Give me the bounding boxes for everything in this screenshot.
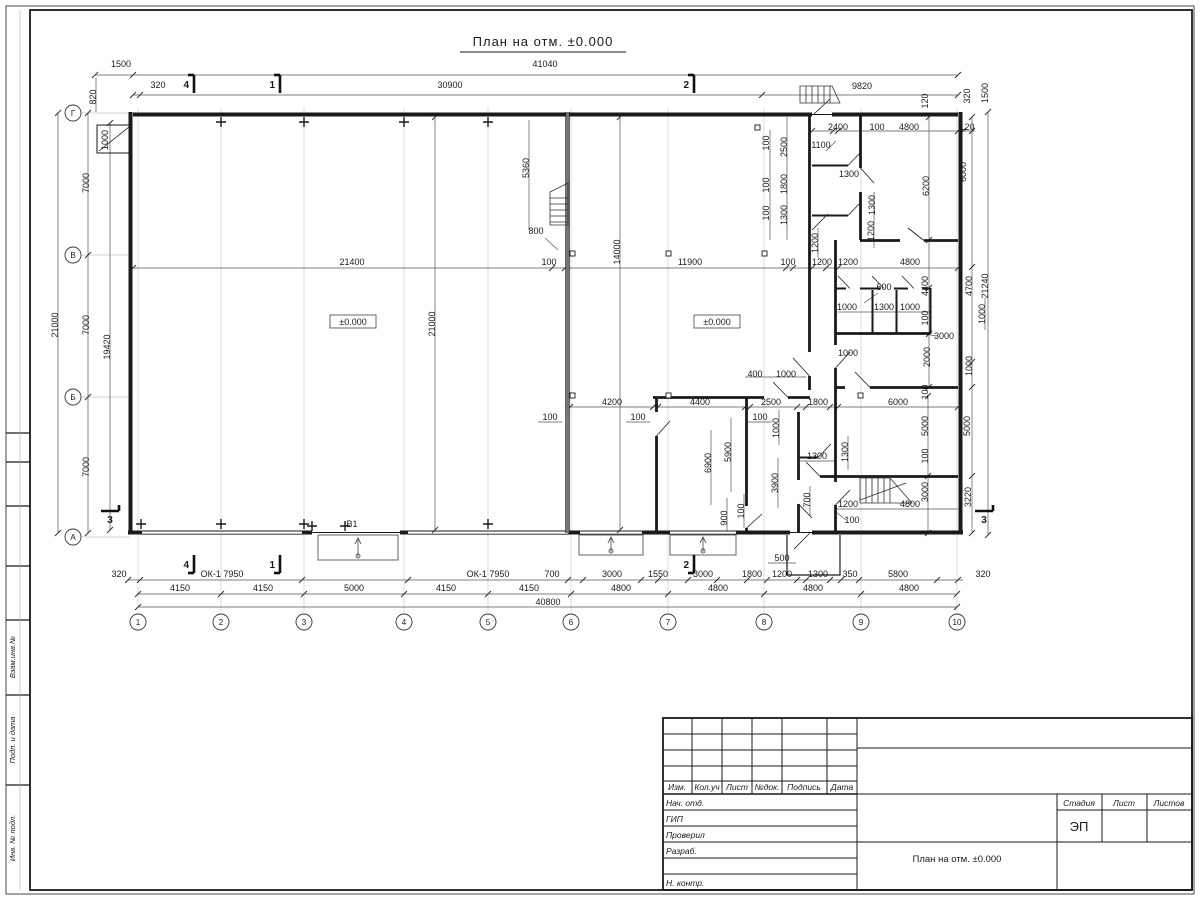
dim-label: 100 [780, 257, 795, 267]
dim-label: 800 [528, 226, 543, 236]
svg-text:В: В [70, 251, 75, 260]
svg-text:Взам.инв.№: Взам.инв.№ [8, 636, 17, 678]
drawing-sheet: 1500410403203090098208201203201500240010… [0, 0, 1200, 900]
svg-text:Нач. отд.: Нач. отд. [666, 798, 704, 808]
svg-text:7: 7 [666, 618, 671, 627]
dim-label: 4800 [708, 583, 728, 593]
dim-label: 1300 [874, 302, 894, 312]
dim-label: 5000 [920, 416, 930, 436]
dim-label: 400 [747, 369, 762, 379]
dim-label: 9820 [852, 81, 872, 91]
dim-label: 100 [920, 310, 930, 325]
dim-label: 1200 [838, 499, 858, 509]
dim-label: 4800 [611, 583, 631, 593]
dim-label: 3220 [963, 487, 973, 507]
dim-label: 1300 [867, 195, 877, 215]
level-marks: ±0.000±0.000 [330, 315, 740, 328]
dim-label: 3000 [693, 569, 713, 579]
dim-label: 5360 [521, 158, 531, 178]
dim-label: 3900 [770, 473, 780, 493]
svg-text:2: 2 [683, 560, 689, 571]
dim-label: 1800 [779, 174, 789, 194]
dim-label: 1200 [866, 221, 876, 241]
svg-text:10: 10 [953, 618, 962, 627]
dim-label: 4800 [899, 122, 919, 132]
dim-label: 2500 [779, 137, 789, 157]
svg-text:Подп. и дата: Подп. и дата [8, 717, 17, 764]
pilaster-marks [136, 117, 493, 531]
svg-text:Дата: Дата [830, 782, 854, 792]
dim-label: 1800 [808, 397, 828, 407]
svg-text:ЭП: ЭП [1070, 819, 1089, 834]
dim-label: 4400 [920, 276, 930, 296]
dim-label: 1000 [776, 369, 796, 379]
dim-label: 6000 [888, 397, 908, 407]
dim-label: 7000 [81, 457, 91, 477]
svg-text:2: 2 [219, 618, 224, 627]
dim-label: 1200 [772, 569, 792, 579]
svg-text:Подпись: Подпись [787, 782, 821, 792]
dim-label: 4200 [602, 397, 622, 407]
dim-label: 6200 [921, 176, 931, 196]
dim-label: 4400 [690, 397, 710, 407]
dim-label: 600 [876, 282, 891, 292]
column-markers [136, 117, 863, 531]
dim-label: 100 [920, 384, 930, 399]
dim-label: 900 [719, 510, 729, 525]
dim-label: 5000 [344, 583, 364, 593]
svg-text:Н. контр.: Н. контр. [666, 878, 704, 888]
dim-label: 1000 [900, 302, 920, 312]
svg-text:Проверил: Проверил [666, 830, 705, 840]
dim-label: 6000 [958, 162, 968, 182]
dim-label: 3000 [602, 569, 622, 579]
svg-text:1: 1 [269, 560, 275, 571]
svg-text:Б: Б [70, 393, 75, 402]
dim-label: 21000 [50, 312, 60, 337]
dim-label: 1550 [648, 569, 668, 579]
svg-text:Лист: Лист [1112, 798, 1135, 808]
dim-label: 5000 [962, 416, 972, 436]
dim-label: 19420 [102, 334, 112, 359]
dim-label: 2400 [828, 122, 848, 132]
dim-label: 4800 [900, 257, 920, 267]
dim-label: 21240 [980, 273, 990, 298]
svg-text:4: 4 [183, 80, 189, 91]
dim-label: 100 [761, 177, 771, 192]
dim-label: 40800 [535, 597, 560, 607]
dim-label: 6900 [703, 453, 713, 473]
dim-label: 100 [844, 515, 859, 525]
dim-label: 41040 [532, 59, 557, 69]
walls [97, 112, 963, 575]
svg-text:9: 9 [859, 618, 864, 627]
dim-label: 100 [630, 412, 645, 422]
entrance-porches [318, 535, 736, 560]
dim-label: 100 [761, 135, 771, 150]
svg-text:Кол.уч: Кол.уч [694, 782, 720, 792]
drawing-title: План на отм. ±0.000 [473, 34, 614, 49]
svg-text:3: 3 [107, 515, 113, 526]
dim-label: 3000 [920, 482, 930, 502]
dim-label: 1300 [779, 205, 789, 225]
svg-text:А: А [70, 533, 76, 542]
dim-label: 1500 [111, 59, 131, 69]
dim-label: 320 [962, 88, 972, 103]
dimension-lines [58, 75, 988, 607]
dim-label: 1000 [771, 418, 781, 438]
dim-label: 4800 [803, 583, 823, 593]
dim-label: В1 [346, 519, 357, 529]
dim-label: 14000 [612, 239, 622, 264]
svg-text:Листов: Листов [1153, 798, 1186, 808]
stairs-top-entrance [800, 86, 840, 103]
svg-text:Инв. № подл.: Инв. № подл. [8, 815, 17, 862]
dim-label: 1000 [838, 348, 858, 358]
dim-label: 7000 [81, 315, 91, 335]
dim-label: 100 [752, 412, 767, 422]
dim-label: 1300 [839, 169, 859, 179]
dim-label: 4700 [964, 276, 974, 296]
svg-text:3: 3 [981, 515, 987, 526]
svg-text:5: 5 [486, 618, 491, 627]
dim-label: 21000 [427, 311, 437, 336]
dim-label: 320 [975, 569, 990, 579]
dim-label: 100 [541, 257, 556, 267]
svg-text:2: 2 [683, 80, 689, 91]
dim-label: 120 [920, 93, 930, 108]
dim-label: 4150 [519, 583, 539, 593]
sheet-frame [6, 6, 1194, 894]
svg-text:Стадия: Стадия [1063, 798, 1095, 808]
dim-label: 1300 [807, 451, 827, 461]
dim-label: 500 [774, 553, 789, 563]
dim-label: 1300 [840, 442, 850, 462]
title-block-text: Изм.Кол.учЛист№док.ПодписьДатаНач. отд.Г… [666, 782, 1185, 888]
dim-label: 100 [736, 503, 746, 518]
dim-label: 100 [761, 205, 771, 220]
dim-label: ОК-1 7950 [201, 569, 244, 579]
stairs-mid [550, 183, 568, 225]
svg-text:Лист: Лист [725, 782, 748, 792]
dim-label: 11900 [678, 257, 702, 267]
svg-text:±0.000: ±0.000 [339, 317, 366, 327]
svg-text:ГИП: ГИП [666, 814, 684, 824]
dim-label: 30900 [437, 80, 462, 90]
svg-text:4: 4 [183, 560, 189, 571]
dim-label: 320 [111, 569, 126, 579]
svg-text:8: 8 [762, 618, 767, 627]
dim-label: 4150 [253, 583, 273, 593]
dim-label: 100 [920, 448, 930, 463]
dim-label: 700 [802, 492, 812, 507]
dim-label: 5900 [723, 442, 733, 462]
svg-text:№док.: №док. [754, 782, 779, 792]
dim-label: 820 [88, 89, 98, 104]
axis-markers: 12345678910ГВБА [65, 105, 965, 630]
dim-label: 4800 [899, 583, 919, 593]
dim-label: 100 [542, 412, 557, 422]
dim-label: 100 [869, 122, 884, 132]
axis-grid-lines [81, 108, 957, 612]
dim-label: 350 [842, 569, 857, 579]
dim-label: 4800 [900, 499, 920, 509]
dim-label: 4150 [170, 583, 190, 593]
dim-label: 2000 [922, 347, 932, 367]
dim-label: 1800 [742, 569, 762, 579]
svg-text:6: 6 [569, 618, 574, 627]
dim-label: 320 [150, 80, 165, 90]
svg-text:±0.000: ±0.000 [703, 317, 730, 327]
dim-label: 1000 [977, 304, 987, 324]
dim-label: 5800 [888, 569, 908, 579]
dimension-ticks [55, 72, 991, 610]
dim-label: 700 [544, 569, 559, 579]
dim-label: 1300 [808, 569, 828, 579]
floor-plan-svg: 1500410403203090098208201203201500240010… [0, 0, 1200, 900]
dim-label: 21400 [339, 257, 364, 267]
svg-text:Изм.: Изм. [668, 782, 686, 792]
svg-text:1: 1 [269, 80, 275, 91]
dim-label: 1200 [812, 257, 832, 267]
dim-label: 4150 [436, 583, 456, 593]
svg-text:4: 4 [402, 618, 407, 627]
svg-text:Разраб.: Разраб. [666, 846, 697, 856]
dim-label: 2500 [761, 397, 781, 407]
svg-text:Г: Г [71, 109, 76, 118]
dim-label: 1000 [964, 356, 974, 376]
svg-text:План на отм. ±0.000: План на отм. ±0.000 [913, 854, 1002, 865]
dim-label: 1000 [100, 130, 110, 150]
svg-text:1: 1 [136, 618, 141, 627]
dim-label: 3000 [934, 331, 954, 341]
dim-label: 1200 [838, 257, 858, 267]
dim-label: ОК-1 7950 [467, 569, 510, 579]
dim-label: 1200 [810, 233, 820, 253]
dim-label: 120 [959, 122, 974, 132]
page-title: План на отм. ±0.000 [460, 34, 626, 52]
dim-label: 1500 [980, 83, 990, 103]
dim-label: 1100 [811, 140, 830, 150]
frame-side-labels: Взам.инв.№Подп. и датаИнв. № подл. [8, 636, 17, 861]
dim-label: 7000 [81, 173, 91, 193]
svg-text:3: 3 [302, 618, 307, 627]
dim-label: 1000 [837, 302, 857, 312]
